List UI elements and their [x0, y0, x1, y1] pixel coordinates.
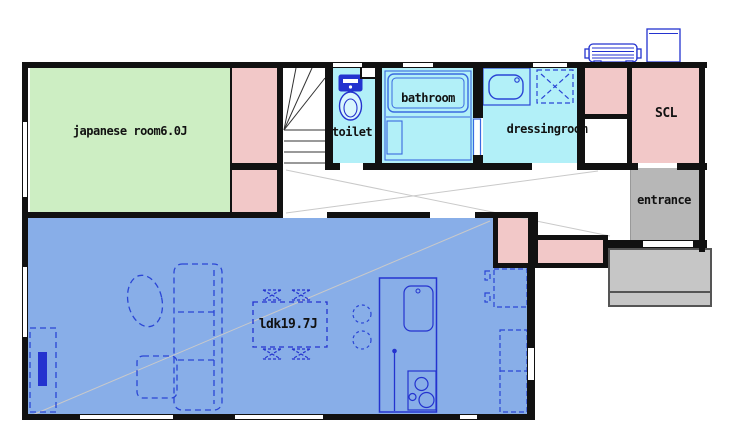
kitchen-island-icon: [380, 278, 437, 412]
wall: [375, 62, 382, 170]
wall: [230, 68, 232, 212]
tv-board-icon: [30, 328, 56, 412]
window: [460, 414, 477, 420]
sight-lines: [30, 170, 610, 416]
wall: [527, 268, 535, 420]
washing-machine-icon: [537, 70, 573, 103]
label-scl: SCL: [636, 106, 696, 121]
window: [235, 414, 323, 420]
window: [22, 267, 28, 337]
wall: [375, 163, 475, 170]
coffee-table-icon: [123, 272, 167, 330]
staircase-icon: [284, 68, 325, 163]
stove-icon: [408, 371, 436, 410]
wall: [475, 163, 532, 170]
wall: [677, 163, 707, 170]
wash-basin-icon: [483, 68, 530, 105]
sofa-icon: [174, 264, 222, 410]
wall: [473, 62, 483, 118]
wall: [577, 163, 632, 170]
wall: [22, 212, 283, 218]
toilet-pipe-space: [360, 68, 375, 79]
front-door: [643, 240, 693, 248]
wall: [232, 163, 277, 170]
window: [80, 414, 173, 420]
heat-pump-unit-icon: [585, 44, 641, 64]
wall: [580, 114, 627, 119]
wall: [493, 263, 607, 268]
wall: [475, 212, 538, 218]
label-dressingroom: dressingroom: [487, 122, 607, 136]
label-entrance: entrance: [624, 193, 704, 207]
label-japanese-room: japanese room6.0J: [50, 124, 210, 138]
wall: [325, 163, 340, 170]
wall: [603, 240, 643, 248]
wall: [327, 212, 430, 218]
wall: [22, 62, 28, 420]
window: [403, 62, 433, 68]
bar-stools-icon: [353, 305, 371, 349]
wall: [493, 213, 498, 268]
water-tank-icon: [647, 29, 680, 62]
toilet-seat-icon: [339, 75, 362, 120]
wall: [363, 163, 375, 170]
wall: [277, 62, 283, 218]
label-ldk: ldk19.7J: [248, 317, 328, 332]
wall: [538, 235, 603, 240]
wall: [693, 240, 707, 248]
wall: [699, 62, 705, 252]
wall: [627, 62, 632, 170]
window: [333, 62, 362, 68]
window: [527, 348, 535, 380]
window: [533, 62, 567, 68]
wall: [632, 163, 638, 170]
window: [22, 122, 28, 197]
wall: [528, 213, 538, 268]
label-bathroom: bathroom: [388, 91, 468, 105]
refrigerator-icon: [485, 269, 527, 307]
bathtub-icon: [385, 71, 481, 160]
floor-plan: japanese room6.0J toilet bathroom dressi…: [0, 0, 738, 444]
label-toilet: toilet: [322, 125, 382, 139]
wall: [325, 62, 333, 170]
kitchen-cabinet-icon: [500, 330, 527, 412]
